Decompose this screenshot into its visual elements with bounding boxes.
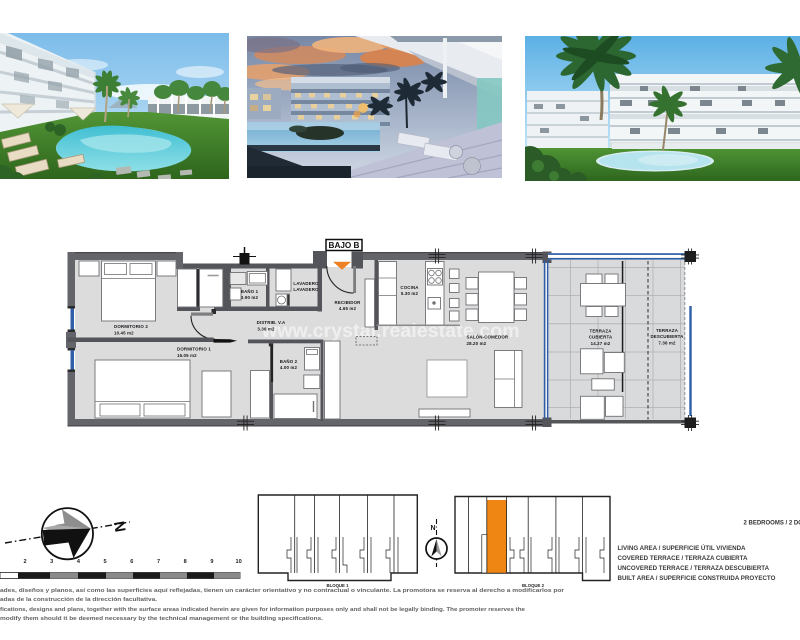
svg-text:9: 9 <box>210 559 213 565</box>
svg-text:COVERED TERRACE / TERRAZA CUBI: COVERED TERRACE / TERRAZA CUBIERTA <box>618 555 748 562</box>
svg-text:SALÓN-COMEDOR: SALÓN-COMEDOR <box>467 335 509 340</box>
svg-text:TERRAZA: TERRAZA <box>656 328 679 333</box>
svg-text:BAÑO 1: BAÑO 1 <box>241 289 259 294</box>
svg-text:10.45 m2: 10.45 m2 <box>114 331 134 336</box>
svg-text:BAJO B: BAJO B <box>329 241 360 250</box>
svg-text:fications, designs and plans,: fications, designs and plans, together w… <box>0 607 525 613</box>
svg-text:14.27 m2: 14.27 m2 <box>591 341 611 346</box>
svg-text:7.36 m2: 7.36 m2 <box>658 341 676 346</box>
svg-text:modify them should it be deeme: modify them should it be deemed necessar… <box>0 616 324 622</box>
svg-text:CUBIERTA: CUBIERTA <box>589 335 613 340</box>
svg-text:TERRAZA: TERRAZA <box>589 329 612 334</box>
svg-text:4.65 m2: 4.65 m2 <box>339 306 357 311</box>
svg-text:ades, diseños y planos, así co: ades, diseños y planos, así como las sup… <box>0 588 565 594</box>
svg-text:LAVADERO: LAVADERO <box>293 287 319 292</box>
svg-text:10: 10 <box>235 559 241 565</box>
svg-text:6: 6 <box>130 559 133 565</box>
svg-text:5: 5 <box>104 559 107 565</box>
svg-text:2: 2 <box>23 559 26 565</box>
svg-text:UNCOVERED TERRACE / TERRAZA DE: UNCOVERED TERRACE / TERRAZA DESCUBIERTA <box>618 565 770 572</box>
svg-text:LAVADERO: LAVADERO <box>293 281 319 286</box>
svg-text:DISTRIB. V.A: DISTRIB. V.A <box>257 320 286 325</box>
svg-text:BAÑO 2: BAÑO 2 <box>280 359 298 364</box>
svg-text:3.90 m2: 3.90 m2 <box>241 295 259 300</box>
svg-text:DORMITORIO 1: DORMITORIO 1 <box>177 347 211 352</box>
svg-text:N: N <box>110 520 129 534</box>
svg-text:28.20 m2: 28.20 m2 <box>467 341 487 346</box>
svg-text:16.05 m2: 16.05 m2 <box>177 353 197 358</box>
svg-text:DORMITORIO 2: DORMITORIO 2 <box>114 324 148 329</box>
svg-text:LIVING AREA / SUPERFICIE ÚTIL: LIVING AREA / SUPERFICIE ÚTIL VIVIENDA <box>618 545 747 552</box>
svg-text:RECIBIDOR: RECIBIDOR <box>335 300 362 305</box>
svg-text:5.30 m2: 5.30 m2 <box>401 291 419 296</box>
svg-text:DESCUBIERTA: DESCUBIERTA <box>650 334 684 339</box>
svg-text:4.00 m2: 4.00 m2 <box>280 365 298 370</box>
svg-text:N: N <box>430 525 435 532</box>
svg-text:adas de la construcción de la: adas de la construcción de la dirección … <box>0 597 158 603</box>
svg-text:7: 7 <box>157 559 160 565</box>
svg-text:3: 3 <box>50 559 53 565</box>
svg-text:2 BEDROOMS / 2 DOR: 2 BEDROOMS / 2 DOR <box>744 521 800 527</box>
svg-text:8: 8 <box>184 559 187 565</box>
svg-text:COCINA: COCINA <box>400 285 419 290</box>
svg-text:3.36 m2: 3.36 m2 <box>257 327 275 332</box>
svg-text:4: 4 <box>77 559 81 565</box>
svg-text:BUILT AREA / SUPERFICIE CONSTR: BUILT AREA / SUPERFICIE CONSTRUIDA PROYE… <box>618 575 776 582</box>
